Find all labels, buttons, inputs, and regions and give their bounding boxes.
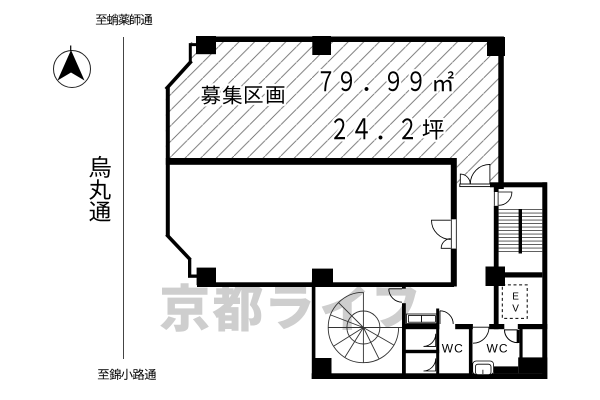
svg-text:V: V — [512, 304, 519, 315]
svg-text:E: E — [512, 291, 519, 302]
svg-text:WC: WC — [487, 342, 509, 356]
svg-text:WC: WC — [442, 342, 464, 356]
